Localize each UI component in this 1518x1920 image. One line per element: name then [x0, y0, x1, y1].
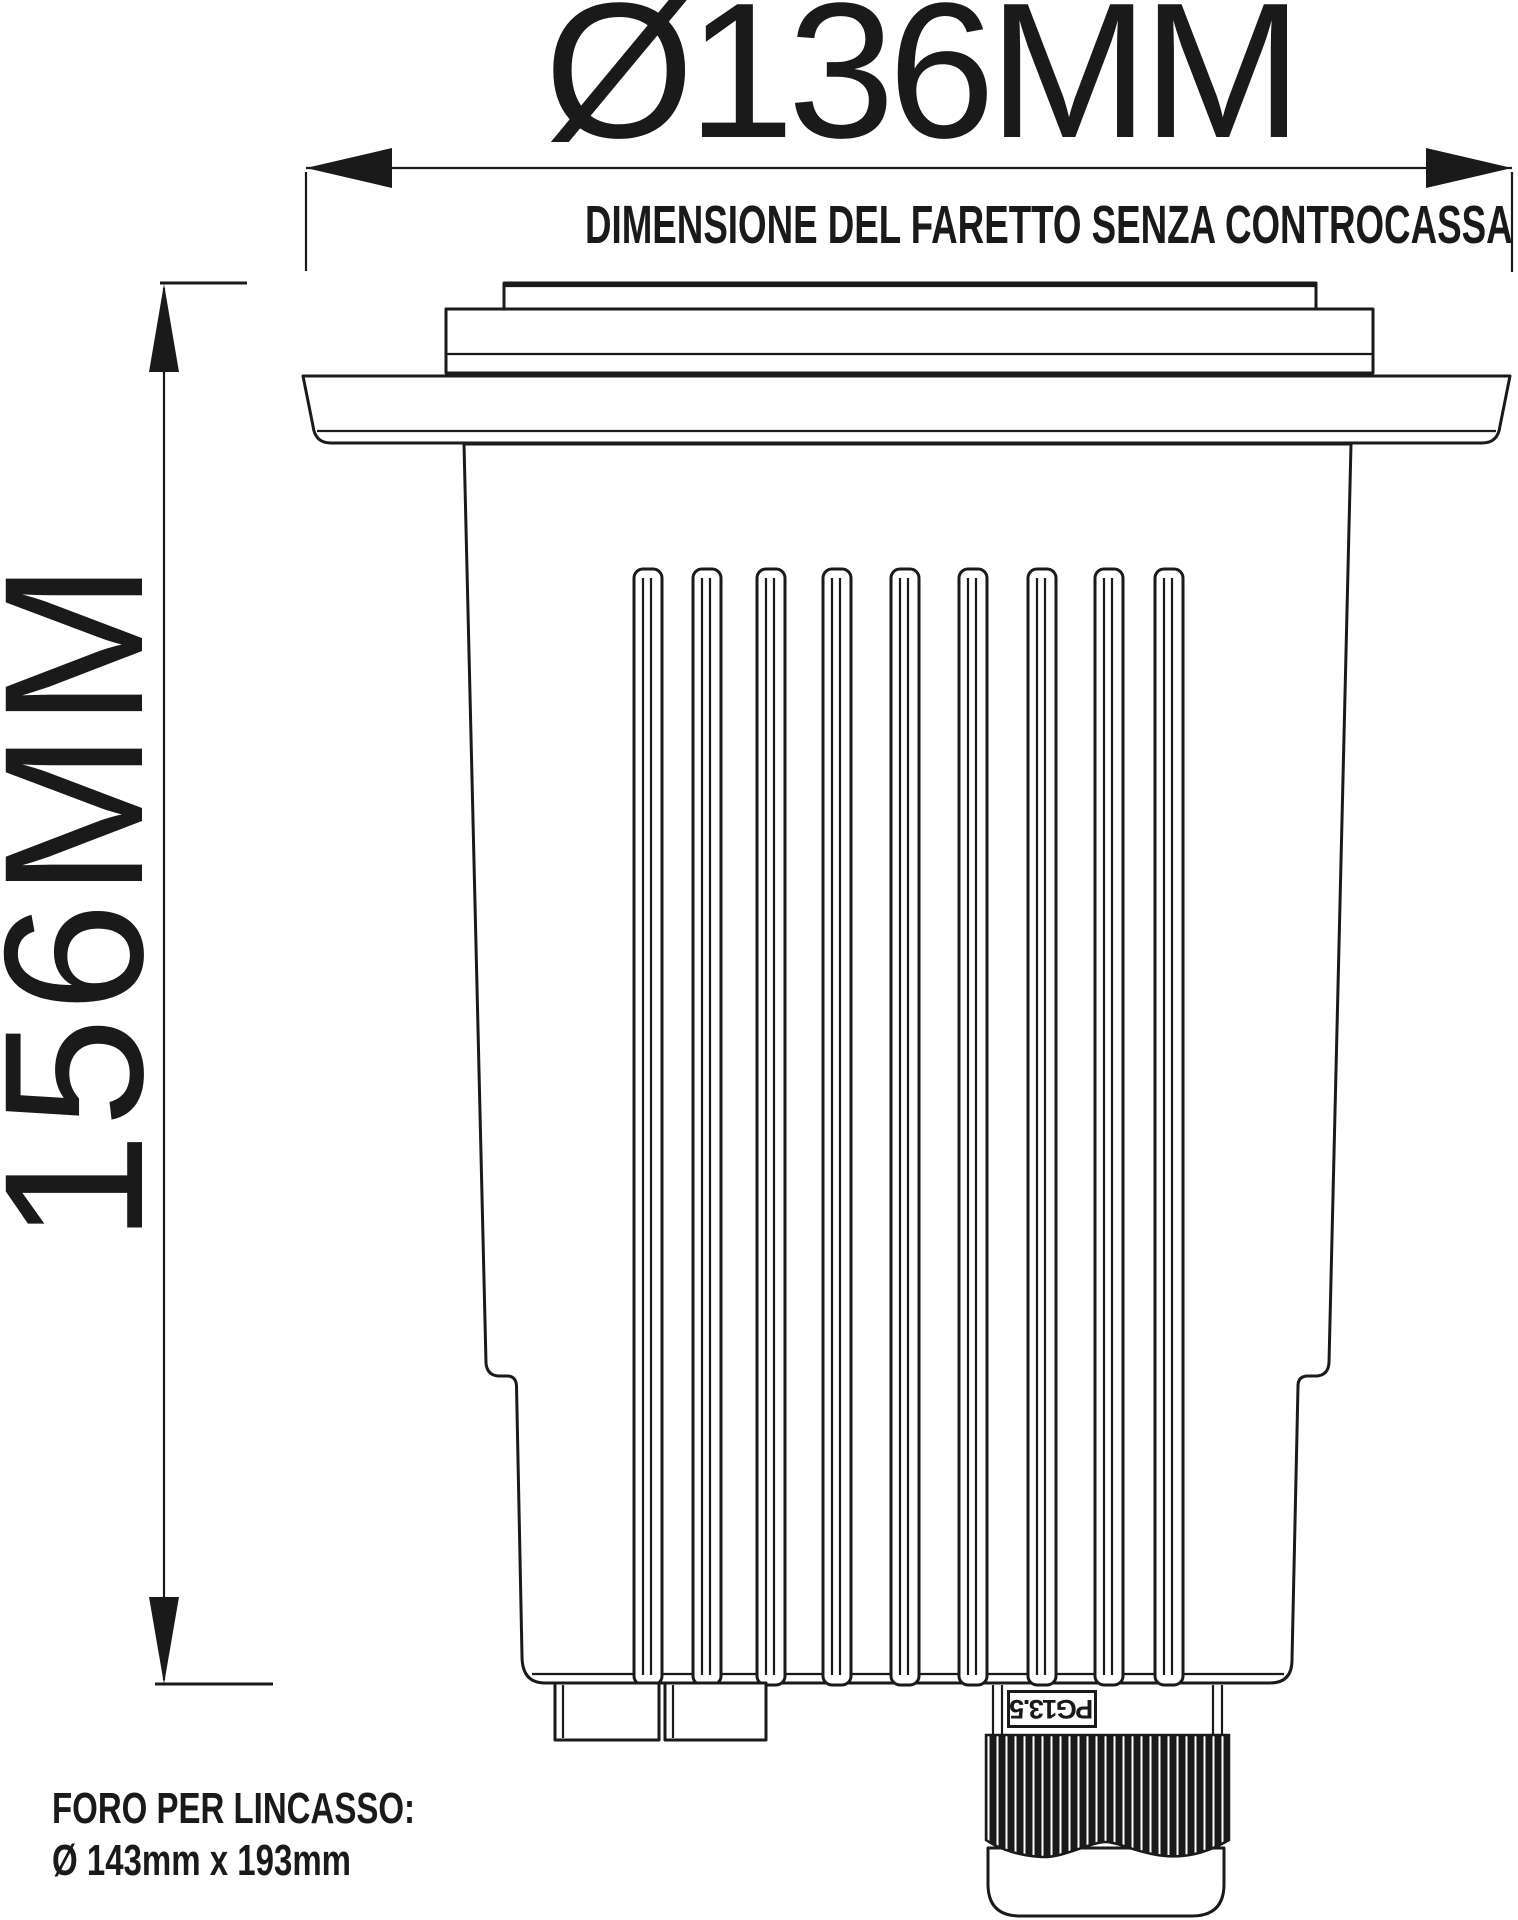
cooling-fin: [757, 569, 785, 1685]
cable-gland-size-label: PG13.5: [1007, 1690, 1097, 1728]
height-dimension-label: 156MM: [0, 557, 173, 1242]
cooling-fin: [891, 569, 919, 1685]
cable-gland-knurl: [986, 1735, 1229, 1857]
cable-gland-cap: [988, 1848, 1224, 1916]
diameter-dimension-label: Ø136MM: [425, 0, 1415, 167]
arrowhead-left-icon: [306, 148, 392, 188]
arrowhead-up-icon: [149, 284, 179, 372]
terminal-block-left: [555, 1683, 659, 1740]
arrowhead-down-icon: [149, 1597, 179, 1684]
cooling-fin: [1155, 569, 1183, 1685]
cooling-fin: [959, 569, 987, 1685]
arrowhead-right-icon: [1426, 148, 1512, 188]
cooling-fin: [693, 569, 721, 1685]
cooling-fins: [634, 569, 1183, 1685]
terminal-block-right: [665, 1683, 766, 1740]
bezel-mid-ring: [446, 309, 1373, 373]
cooling-fin: [1095, 569, 1123, 1685]
technical-drawing-canvas: Ø136MM DIMENSIONE DEL FARETTO SENZA CONT…: [0, 0, 1518, 1920]
cutout-note-size: Ø 143mm x 193mm: [52, 1835, 415, 1887]
diameter-note-label: DIMENSIONE DEL FARETTO SENZA CONTROCASSA: [585, 198, 1265, 252]
fixture-line-drawing: [0, 0, 1518, 1920]
cooling-fin: [1028, 569, 1056, 1685]
mounting-flange: [303, 376, 1510, 443]
cutout-note: FORO PER LINCASSO: Ø 143mm x 193mm: [52, 1783, 415, 1887]
cooling-fin: [634, 569, 662, 1685]
cutout-note-title: FORO PER LINCASSO:: [52, 1783, 415, 1835]
cooling-fin: [823, 569, 851, 1685]
